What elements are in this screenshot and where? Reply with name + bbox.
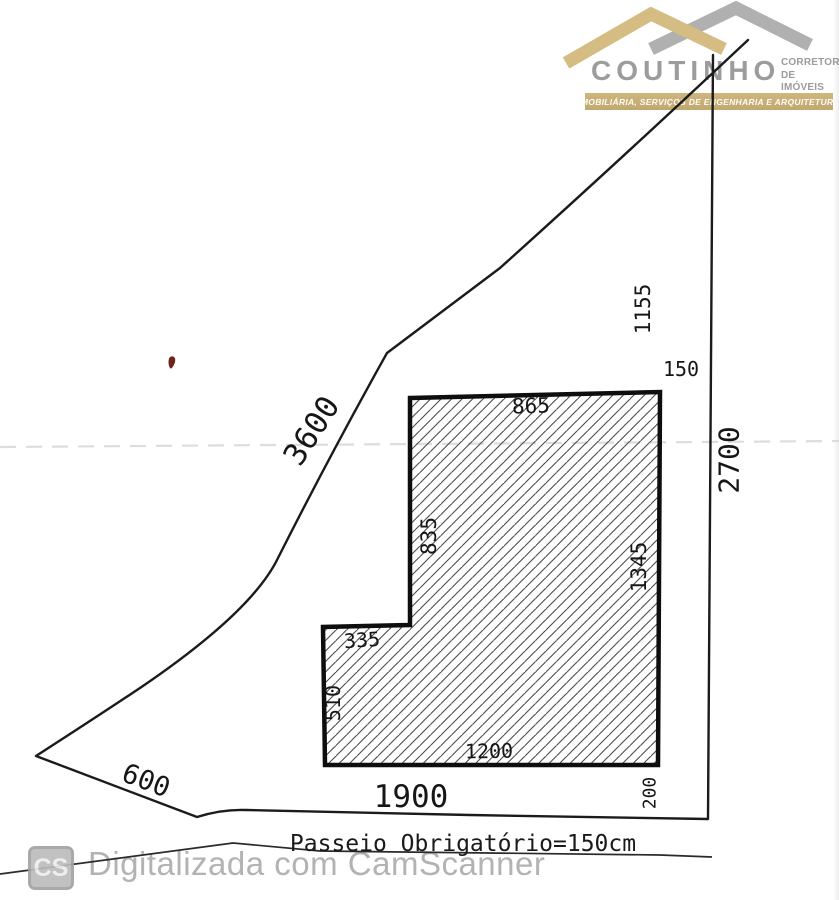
dim-building-left-upper: 835 — [417, 517, 441, 555]
camscanner-badge: CS — [28, 846, 74, 890]
scanned-lot-plan-page: Digitalizada com CamScanner COUTINHO COR… — [0, 0, 839, 900]
dim-upper-setback: 1155 — [631, 284, 655, 335]
dim-building-right: 1345 — [627, 542, 651, 593]
dim-building-top: 865 — [512, 393, 551, 418]
building-footprint — [323, 392, 660, 765]
dim-building-left-lower: 510 — [321, 685, 345, 721]
dim-building-step: 335 — [343, 627, 381, 653]
dim-right-boundary: 2700 — [713, 426, 746, 493]
dim-rear-offset: 200 — [640, 777, 661, 810]
dim-right-setback: 150 — [663, 357, 699, 381]
dim-lot-frontage: 1900 — [374, 779, 449, 815]
dim-building-bottom: 1200 — [465, 739, 514, 764]
ink-speck — [169, 356, 176, 368]
sidewalk-note: Passeio Obrigatório=150cm — [290, 831, 636, 857]
